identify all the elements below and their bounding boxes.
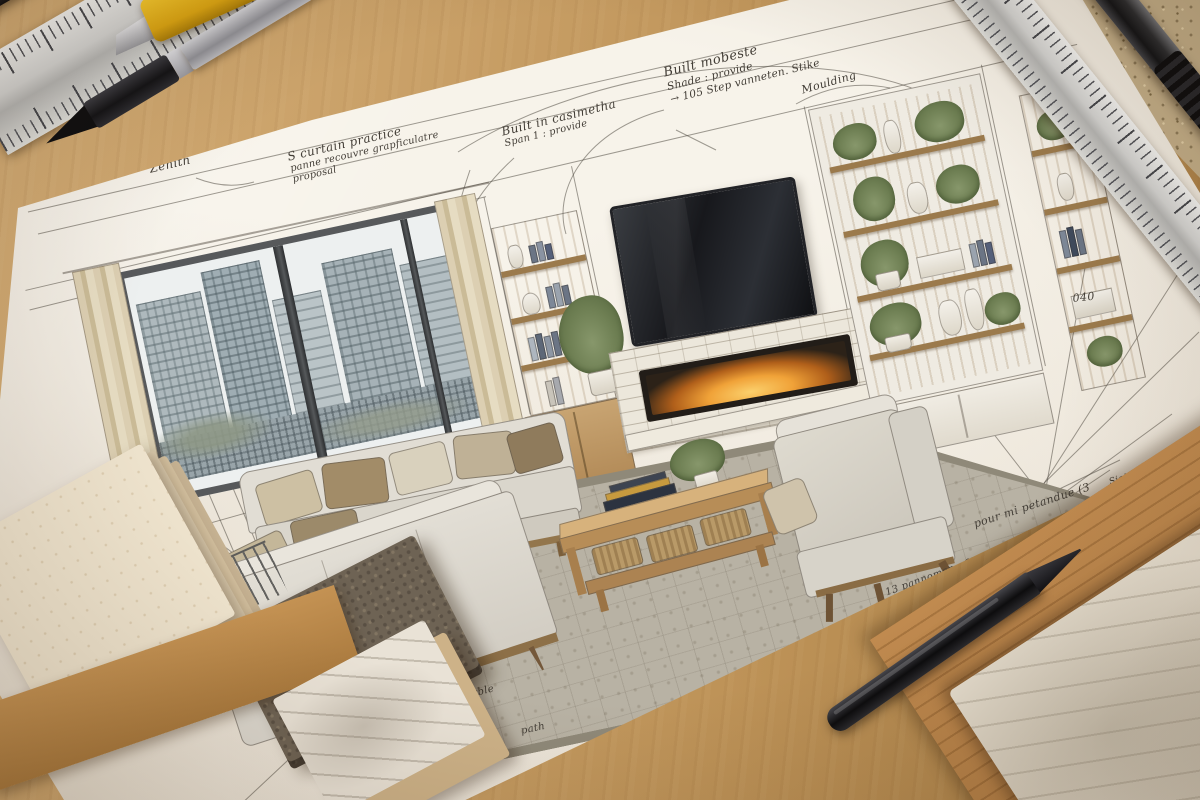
shelf-plant <box>932 161 983 207</box>
vase <box>881 119 904 156</box>
bottle-vase <box>962 287 987 332</box>
cabinet-door-seam <box>957 395 968 438</box>
armchair-leg <box>826 594 833 622</box>
books <box>545 378 565 407</box>
books <box>527 332 562 362</box>
note-builtin-right: Built mobeste Shade : provide → 105 Step… <box>662 29 821 106</box>
scene-photo: Zenith S curtain practice panne recouvre… <box>0 0 1200 800</box>
shelf-plant <box>1084 333 1125 370</box>
vase <box>1055 172 1076 203</box>
books <box>1059 227 1087 259</box>
shelf-plant <box>849 173 899 225</box>
note-curtain: S curtain practice panne recouvre grapfi… <box>286 116 442 185</box>
shelf <box>1044 197 1108 216</box>
table-leg <box>596 589 609 612</box>
shelf-plant <box>982 289 1024 328</box>
books <box>968 240 995 268</box>
vase <box>506 243 526 270</box>
vase <box>905 180 931 215</box>
books <box>528 241 554 263</box>
sofa-leg <box>527 645 546 672</box>
tv-reflection <box>645 198 707 339</box>
dimension-text: 040 <box>1072 290 1095 305</box>
dim-040: 040 <box>1072 290 1095 305</box>
vase <box>936 298 965 338</box>
